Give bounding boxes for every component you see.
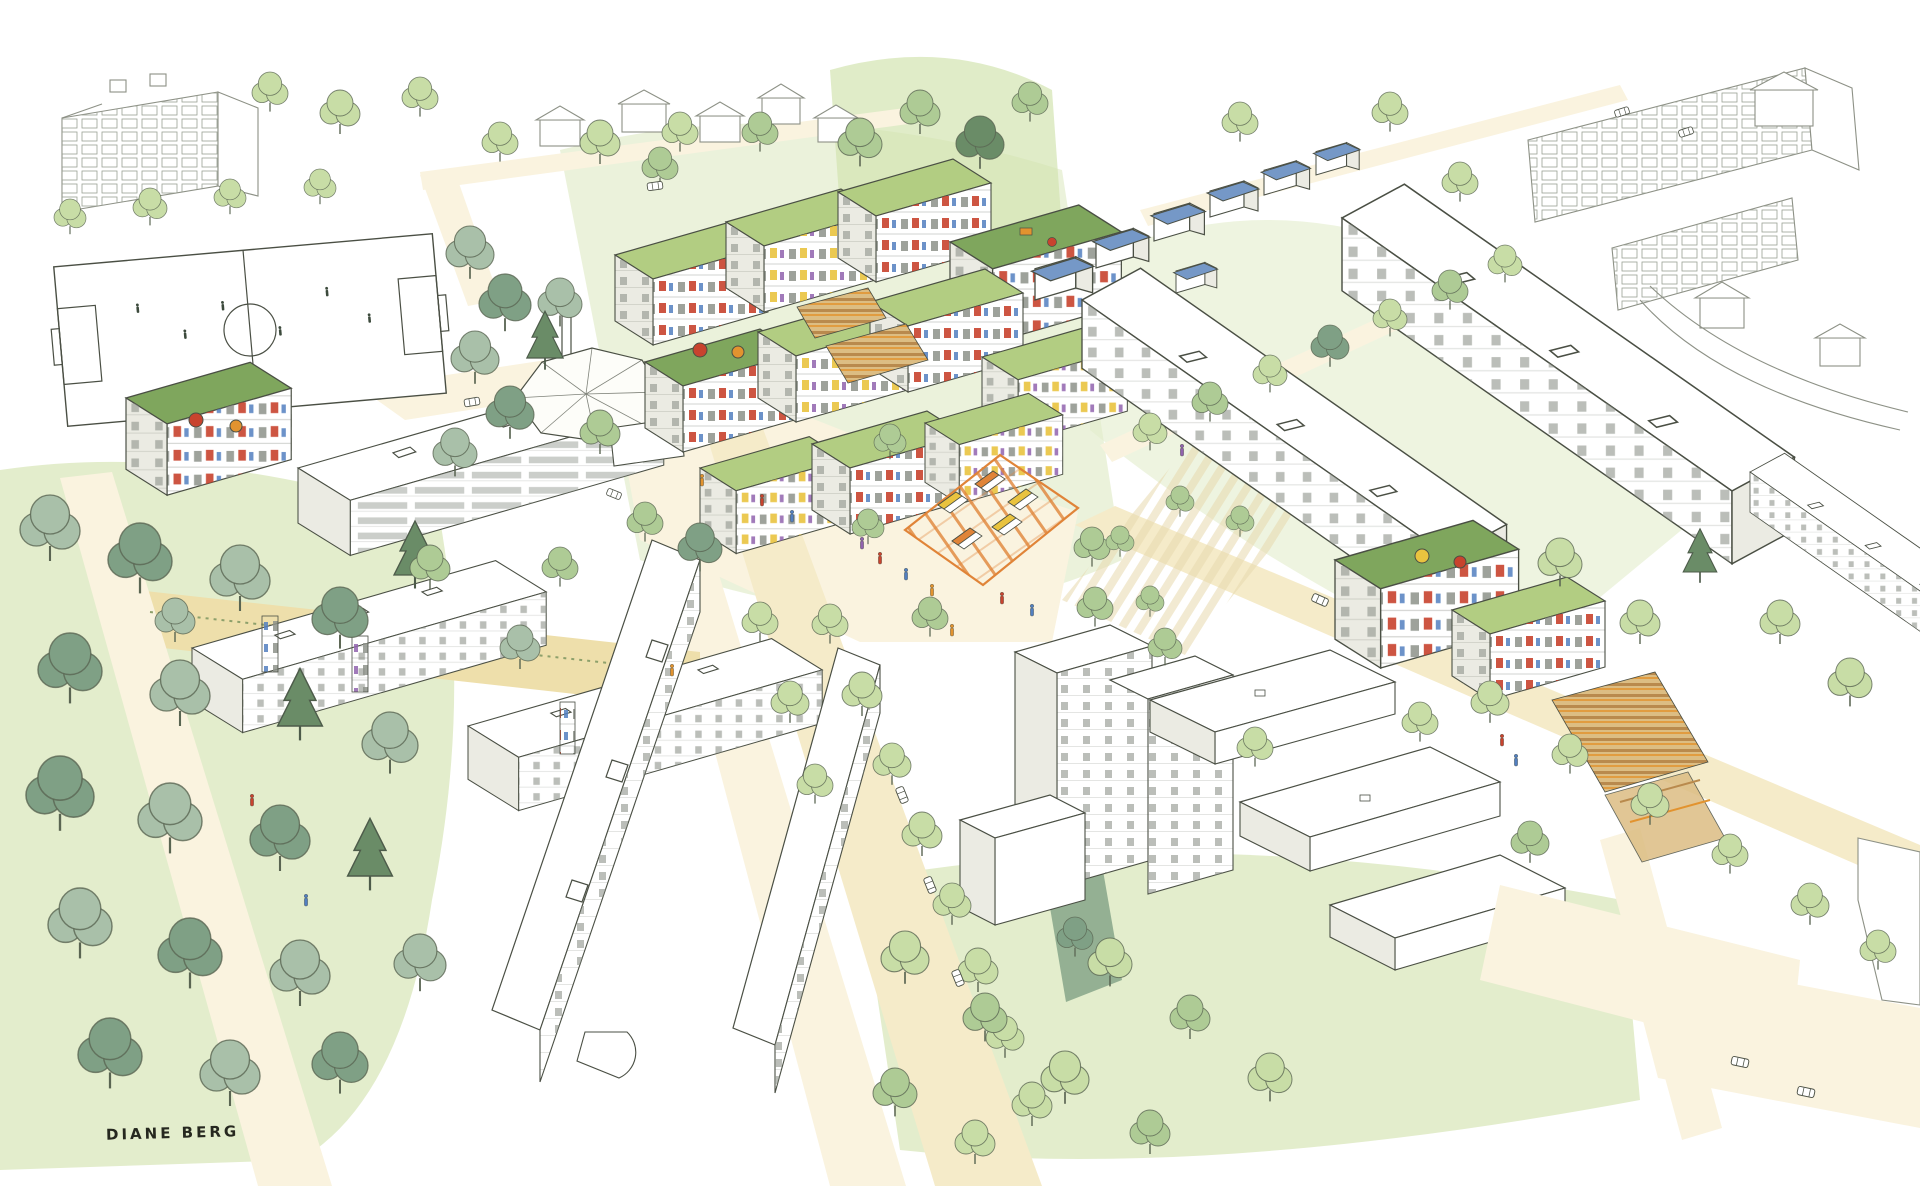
roof-umbrella [732, 346, 744, 358]
context-building-bottomright [1858, 838, 1920, 1005]
artist-signature: DIANE BERG [106, 1122, 240, 1143]
neighborhood-illustration [0, 0, 1920, 1186]
balcony-tower [560, 702, 575, 754]
roof-umbrella [1415, 549, 1429, 563]
pavilion [960, 795, 1085, 925]
curved-annex [577, 1032, 636, 1078]
roof-play-equipment [1048, 238, 1057, 247]
balcony-tower [262, 616, 278, 672]
roof-play-equipment [1020, 228, 1032, 235]
roof-umbrella [693, 343, 707, 357]
illustration-canvas: DIANE BERG [0, 0, 1920, 1186]
balcony-tower [352, 636, 368, 692]
roof-umbrella [1454, 556, 1466, 568]
pavilion [1240, 747, 1500, 871]
